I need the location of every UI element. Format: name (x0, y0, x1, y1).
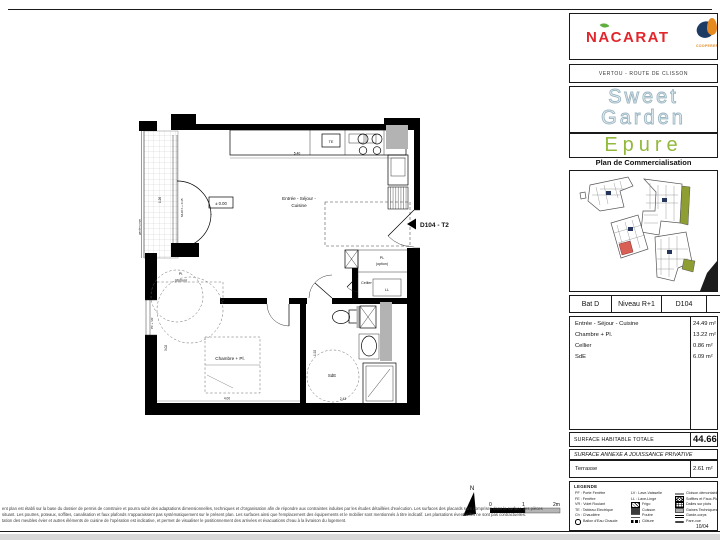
project-sub-box: Epure (569, 133, 718, 158)
legend-item: Ballon d'Eau Chaude (583, 519, 618, 525)
annex-header: SURFACE ANNEXE A JOUISSANCE PRIVATIVE (569, 449, 718, 460)
room-name: Cellier (575, 343, 591, 349)
project-sub-label: Epure (604, 134, 682, 157)
chambre: Pl. (option) Chambre + Pl. 4.00 3.02 PF … (150, 270, 300, 401)
dim-terrace: 1.26 (158, 197, 162, 203)
room-label-sejour-1: Entrée - Séjour - (282, 196, 316, 201)
poutre-icon (631, 514, 640, 518)
fridge-icon (386, 125, 408, 149)
ll-label: LL (385, 288, 389, 292)
pl2-label-2: (option) (376, 262, 388, 266)
room-label-sde: SdE (328, 373, 336, 378)
pl2-label-1: PL (380, 256, 384, 260)
annex-label: SURFACE ANNEXE A JOUISSANCE PRIVATIVE (574, 452, 692, 458)
project-name-box: Sweet Garden (569, 86, 718, 133)
level-label: ± 0.00 (215, 201, 227, 206)
room-name: SdE (575, 354, 586, 360)
plan-sheet: { "colors": { "brand_red": "#e2262c", "l… (0, 0, 720, 540)
legend-col1: PF : Porte Fenêtre FE : Fenêtre VR : Vol… (575, 491, 630, 525)
terrace: garde-corps 1.26 (138, 131, 179, 258)
terrasse-divider (690, 461, 691, 477)
room-area: 0.86 m² (693, 343, 713, 349)
room-area: 13.22 m² (693, 332, 716, 338)
gaine-technique (380, 302, 392, 361)
room-area: 24.49 m² (693, 321, 716, 327)
legend-title: LEGENDE (574, 484, 597, 489)
terrasse-area: 2.61 m² (693, 466, 713, 472)
habitable-total-row: SURFACE HABITABLE TOTALE 44.66 m² (569, 432, 718, 447)
cooktop-icon (358, 134, 382, 154)
gaines-icon (675, 508, 684, 513)
dim-top: 5.40 (294, 152, 301, 156)
habitable-divider (690, 433, 691, 446)
sejour: Entrée - Séjour - Cuisine ± 0.00 MUR h +… (177, 181, 410, 248)
cellier-label: Cellier (361, 281, 372, 285)
rooms-table: Entrée - Séjour - Cuisine 24.49 m² Chamb… (569, 316, 718, 430)
room-label-chambre: Chambre + Pl. (215, 356, 245, 361)
dim-sde-h: 1.92 (313, 350, 317, 356)
unit-arrow-label: D104 - T2 (420, 222, 449, 229)
mur-label: MUR h + 0.35 (180, 198, 184, 217)
cloison-icon (675, 493, 684, 496)
legend-col3: Cloison démontable Soffites et Faux-Plaf… (675, 491, 718, 525)
site-plan-box (569, 170, 718, 292)
dim-chambre-h: 3.02 (164, 345, 168, 351)
dim-sde-w: 2.43 (340, 397, 346, 401)
unit-building: Bat D (582, 301, 600, 308)
te-label: TE (329, 140, 334, 144)
coop-logo: COOPERER (696, 18, 718, 58)
project-name-line1: Sweet (570, 87, 717, 108)
coop-logo-orange-icon (707, 18, 717, 35)
kitchen: TE 5.40 (230, 125, 408, 209)
habitable-label: SURFACE HABITABLE TOTALE (574, 437, 654, 443)
legend-item: Clôture (642, 519, 654, 525)
cloture-icon (631, 520, 640, 523)
sheet-top-rule (8, 9, 712, 10)
location-box: VERTOU - ROUTE DE CLISSON (569, 64, 718, 83)
pare-vue-icon (675, 521, 684, 523)
cuisson-icon (631, 508, 640, 514)
unit-number-cell: D104 (661, 295, 707, 313)
terrasse-row: Terrasse 2.61 m² (569, 460, 718, 478)
pl-label-1: Pl. (179, 272, 183, 276)
sde: SdE 2.43 1.92 (307, 275, 396, 404)
pl-label-2: (option) (175, 279, 187, 283)
room-name: Entrée - Séjour - Cuisine (575, 321, 638, 327)
floor-plan: garde-corps 1.26 TE (137, 113, 467, 420)
sheet-bottom-rule (0, 531, 720, 532)
plan-date: 10/04 (696, 524, 709, 530)
garde-corps-icon (675, 515, 684, 518)
project-name-line2: Garden (570, 108, 717, 129)
windows (145, 135, 420, 335)
dim-chambre-w: 4.00 (224, 397, 230, 401)
unit-building-cell: Bat D (569, 295, 612, 313)
pfvr-label: PF + VR (150, 317, 154, 329)
legend-box: LEGENDE PF : Porte Fenêtre FE : Fenêtre … (569, 481, 718, 531)
room-area: 6.09 m² (693, 354, 713, 360)
unit-level-cell: Niveau R+1 (611, 295, 662, 313)
disclaimer-line: tation des meubles évier et autres éléme… (2, 518, 564, 524)
north-label: N (470, 486, 474, 492)
unit-arrow: D104 - T2 (407, 219, 449, 230)
coop-logo-text: COOPERER (696, 44, 718, 48)
unit-number: D104 (676, 301, 693, 308)
garde-corps-label: garde-corps (138, 218, 142, 235)
page-edge (0, 534, 720, 540)
terrasse-name: Terrasse (575, 466, 597, 472)
ballon-icon (575, 519, 581, 525)
rooms-table-divider (690, 317, 691, 429)
left-arrow-icon (407, 219, 416, 230)
legend-col2: LV : Lave-Vaisselle LL : Lave-Linge Frig… (631, 491, 676, 525)
developer-logo-box: NACARAT COOPERER (569, 13, 718, 60)
room-label-sejour-2: Cuisine (291, 203, 307, 208)
site-plan (570, 171, 717, 291)
plan-title: Plan de Commercialisation (569, 158, 718, 167)
unit-type-cell: T2 (706, 295, 720, 313)
unit-level: Niveau R+1 (618, 301, 655, 308)
habitable-value: 44.66 m² (693, 434, 718, 445)
developer-logo: NACARAT (586, 29, 670, 46)
location-label: VERTOU - ROUTE DE CLISSON (599, 71, 688, 77)
room-name: Chambre + Pl. (575, 332, 612, 338)
